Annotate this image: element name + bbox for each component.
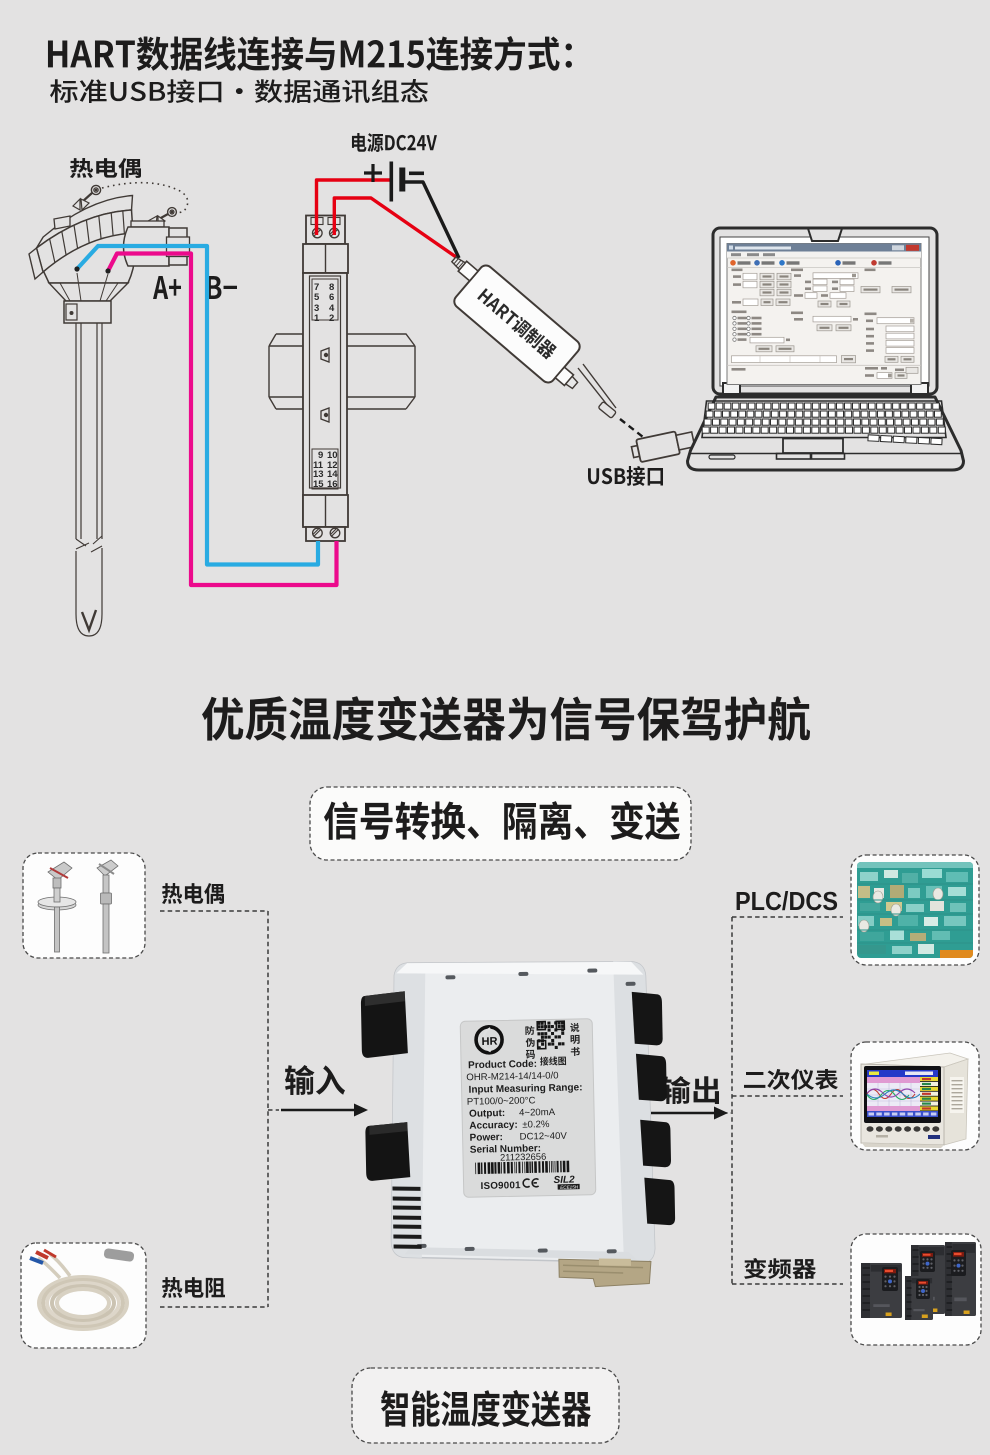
svg-text:6: 6 — [329, 292, 334, 303]
svg-text:Product Code:: Product Code: — [468, 1059, 537, 1071]
svg-text:211232656: 211232656 — [500, 1151, 546, 1163]
svg-text:±0.2%: ±0.2% — [522, 1119, 550, 1131]
svg-text:PT100/0~200°C: PT100/0~200°C — [467, 1095, 536, 1107]
svg-text:4~20mA: 4~20mA — [519, 1107, 556, 1119]
svg-text:ISO9001: ISO9001 — [481, 1180, 522, 1192]
svg-text:Accuracy:: Accuracy: — [469, 1120, 518, 1132]
svg-text:Power:: Power: — [470, 1132, 504, 1144]
svg-text:16: 16 — [327, 479, 338, 490]
svg-text:OHR-M214-14/14-0/0: OHR-M214-14/14-0/0 — [466, 1070, 558, 1083]
svg-text:HR: HR — [481, 1036, 497, 1048]
svg-text:PLC/DCS: PLC/DCS — [735, 886, 838, 916]
svg-text:15: 15 — [313, 479, 324, 490]
svg-text:5: 5 — [314, 292, 320, 303]
svg-text:ECE15H: ECE15H — [560, 1185, 579, 1190]
svg-text:1: 1 — [314, 313, 320, 324]
svg-text:Output:: Output: — [469, 1108, 505, 1120]
svg-text:2: 2 — [329, 313, 334, 324]
svg-text:DC12~40V: DC12~40V — [519, 1131, 567, 1143]
